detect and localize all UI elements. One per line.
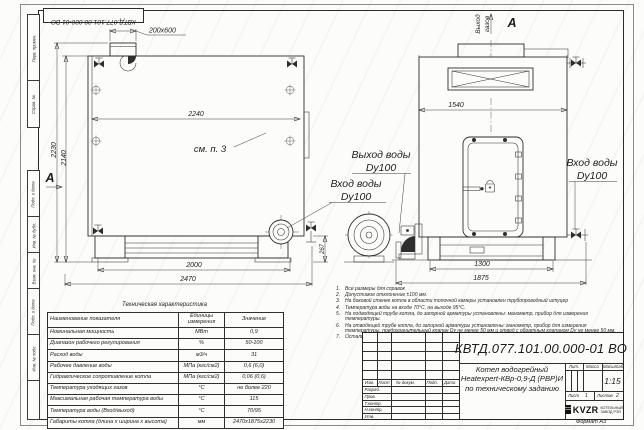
dim-2140: 2140 [61,150,68,167]
table-row: Максимальная рабочая температура воды°С1… [48,394,283,405]
kvzr-logo-icon [565,405,571,414]
gas-outlet-label-1: Выход [474,14,482,34]
dim-2240: 2240 [187,111,204,118]
role-nkontr: Н.контр. [365,407,383,412]
table-row: Гидравлическое сопротивление котлаМПа (к… [48,372,283,383]
sheet-label: Лист [568,393,579,398]
tech-table-title: Техническая характеристика [47,302,282,308]
table-row: Температура воды (Вход/выход)°С70/95 [48,405,283,416]
section-label-left: А [44,171,54,185]
format-label: Формат А3 [576,419,606,425]
valve-gas-side [571,57,581,67]
tech-table: Наименование показателя Единицы измерени… [47,312,284,429]
role-razrab: Разраб. [365,387,381,392]
water-inlet-side-label: Вход воды [567,157,618,169]
table-row: Расход водым3/ч31 [48,349,283,360]
water-inlet-label: Вход воды [331,178,382,190]
table-row: Рабочее давление водыМПа (кгс/см2)0,6 (6… [48,361,283,372]
tech-table-header: Наименование показателя Единицы измерени… [48,313,283,327]
dim-1875: 1875 [473,275,489,282]
table-row: Температура уходящих газов°Сне более 220 [48,383,283,394]
table-row: Номинальная мощностьМВт0,9 [48,327,283,338]
center-annotations: Выход воды Dy100 Вход воды Dy100 [287,149,411,262]
scale-value: 1:15 [602,370,623,391]
note-5: 5.На подводящей трубе котла, до запорной… [336,312,620,323]
product-name: Котел водогрейный Heatexpert-КВр-0,9-Д (… [459,365,565,393]
sheets-label: Листов [597,393,613,398]
col-data: Дата [444,380,455,385]
water-outlet-label: Выход воды [351,149,410,161]
table-row: Диапазон рабочего регулирования%50-100 [48,338,283,349]
kvzr-logo-text: KVZR [573,405,599,415]
water-inlet-dn: Dy100 [341,191,372,203]
see-note-ref: см. п. 3 [194,144,227,155]
role-prov: Пров. [365,394,376,399]
sheet-value: 1 [585,393,588,399]
water-outlet-dn: Dy100 [366,162,397,174]
dim-267: 267 [320,243,326,255]
gas-outlet-label-2: газов [484,15,491,32]
sheets-value: 2 [616,393,619,399]
col-list: Лист [379,380,390,385]
dim-duct-size: 200х600 [148,28,176,35]
section-label-right: А [506,16,516,30]
dim-2000: 2000 [185,262,202,269]
title-block: Изм. Лист № докум. Подп. Дата Разраб. Пр… [362,332,624,420]
water-inlet-side-dn: Dy100 [577,170,608,182]
col-podp: Подп. [427,380,438,385]
col-izm: Изм. [365,380,374,385]
front-view: 200х600 2240 см. п. 3 2230 2140 А 2000 2… [44,28,328,287]
doc-number: КВТД.077.101.00.000-01 ВО [459,333,623,363]
valve-water-inlet-side [571,229,581,239]
dim-2230: 2230 [51,142,58,159]
mass-label: Масса [586,364,599,369]
col-doc: № докум. [396,380,415,385]
dim-1300: 1300 [474,261,490,268]
company-cell: KVZR КОТЕЛЬНЫЙ ЗАВОД РЭП [565,400,623,419]
dim-2470: 2470 [179,276,196,283]
table-row: Габариты котла (длина х ширина х высота)… [48,417,283,428]
role-tkontr: Т.контр. [365,401,382,406]
dim-1540: 1540 [448,102,464,109]
lit-label: Лит. [569,364,579,369]
role-utv: Утв. [365,414,375,419]
valve-inlet [306,222,316,232]
scale-label: Масштаб [603,364,623,369]
company-name: КОТЕЛЬНЫЙ ЗАВОД РЭП [600,406,623,414]
drawing-sheet: Перв. примен. Справ. № Подп. и дата Инв.… [0,0,644,430]
side-view: Выход газов А [392,14,618,285]
